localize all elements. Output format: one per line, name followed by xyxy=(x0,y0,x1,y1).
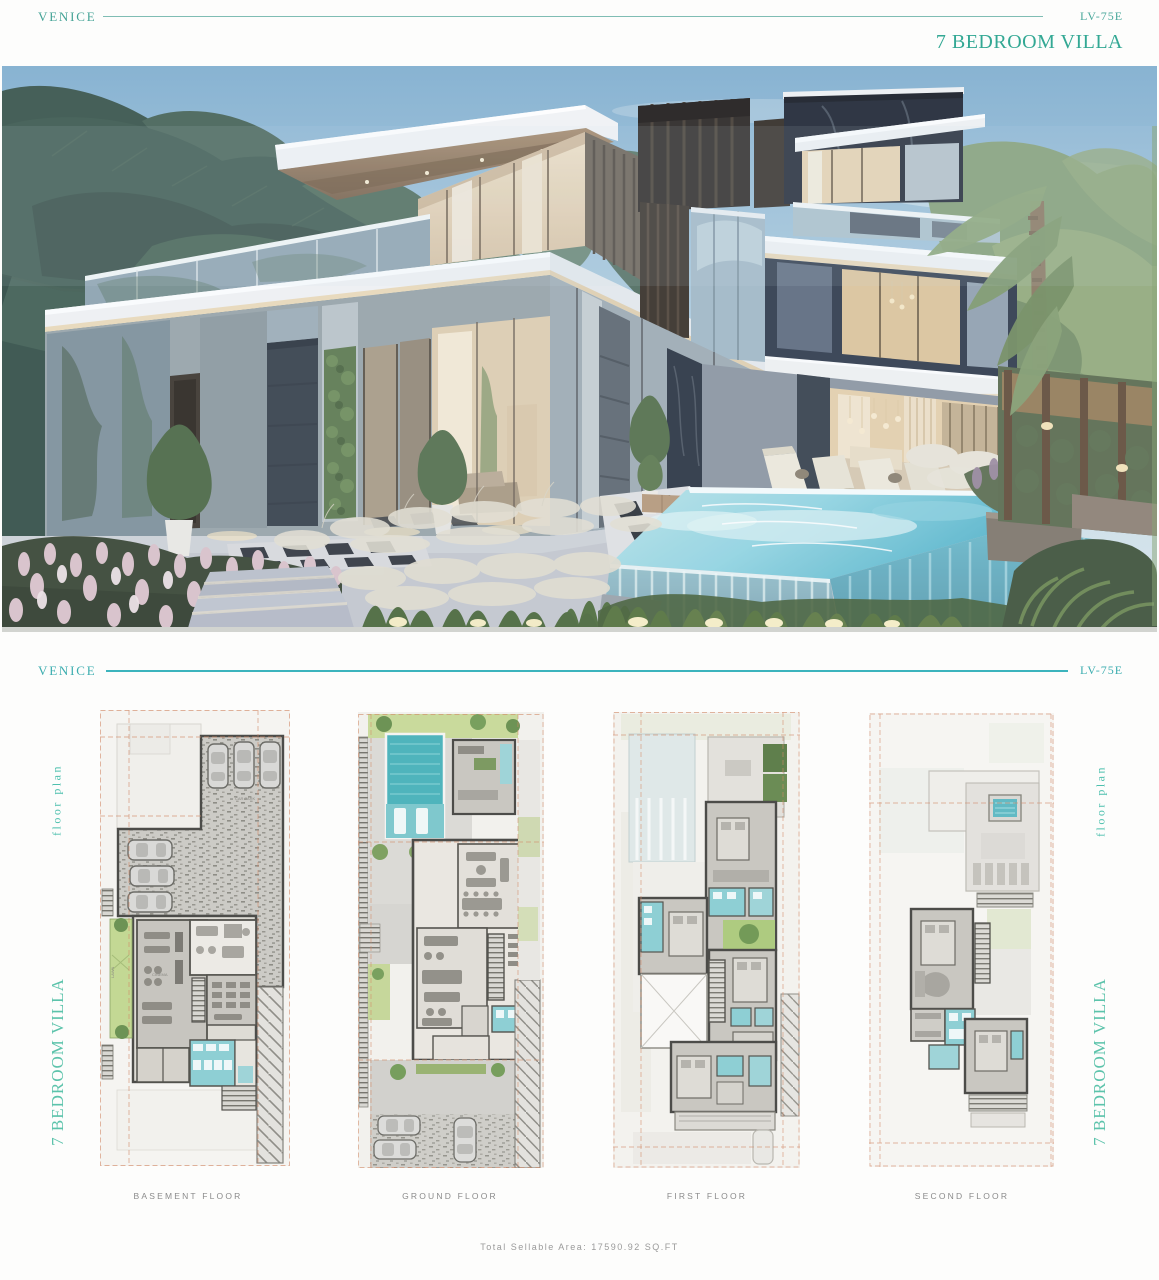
svg-text:CAR PARK: CAR PARK xyxy=(235,796,255,801)
svg-text:LAWN: LAWN xyxy=(110,966,115,978)
svg-text:CINEMA: CINEMA xyxy=(152,972,168,977)
